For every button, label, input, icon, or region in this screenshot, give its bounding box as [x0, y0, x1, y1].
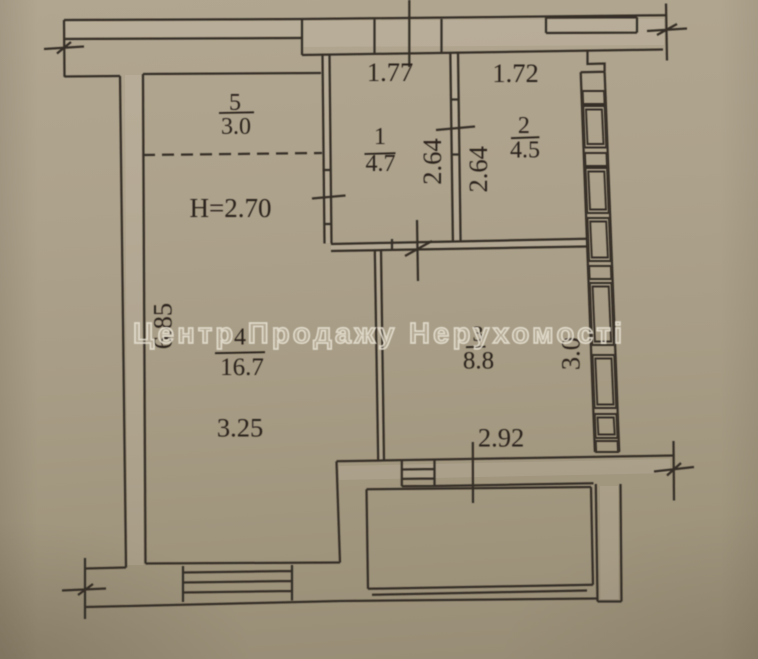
svg-text:H=2.70: H=2.70 [190, 193, 272, 223]
svg-text:8.8: 8.8 [463, 348, 494, 375]
svg-text:1: 1 [374, 124, 386, 150]
svg-text:2.64: 2.64 [417, 138, 447, 184]
svg-text:4.5: 4.5 [510, 138, 540, 164]
svg-text:16.7: 16.7 [220, 354, 264, 381]
svg-text:Центр Продажу Нерухомості: Центр Продажу Нерухомості [133, 318, 622, 350]
svg-text:1.72: 1.72 [492, 58, 538, 88]
svg-text:2.92: 2.92 [478, 423, 524, 453]
svg-text:3.0: 3.0 [221, 114, 251, 140]
svg-text:2.64: 2.64 [463, 146, 493, 192]
svg-text:1.77: 1.77 [367, 57, 413, 87]
svg-text:3.25: 3.25 [217, 413, 263, 443]
svg-text:2: 2 [518, 113, 530, 139]
svg-text:4.7: 4.7 [366, 151, 396, 177]
